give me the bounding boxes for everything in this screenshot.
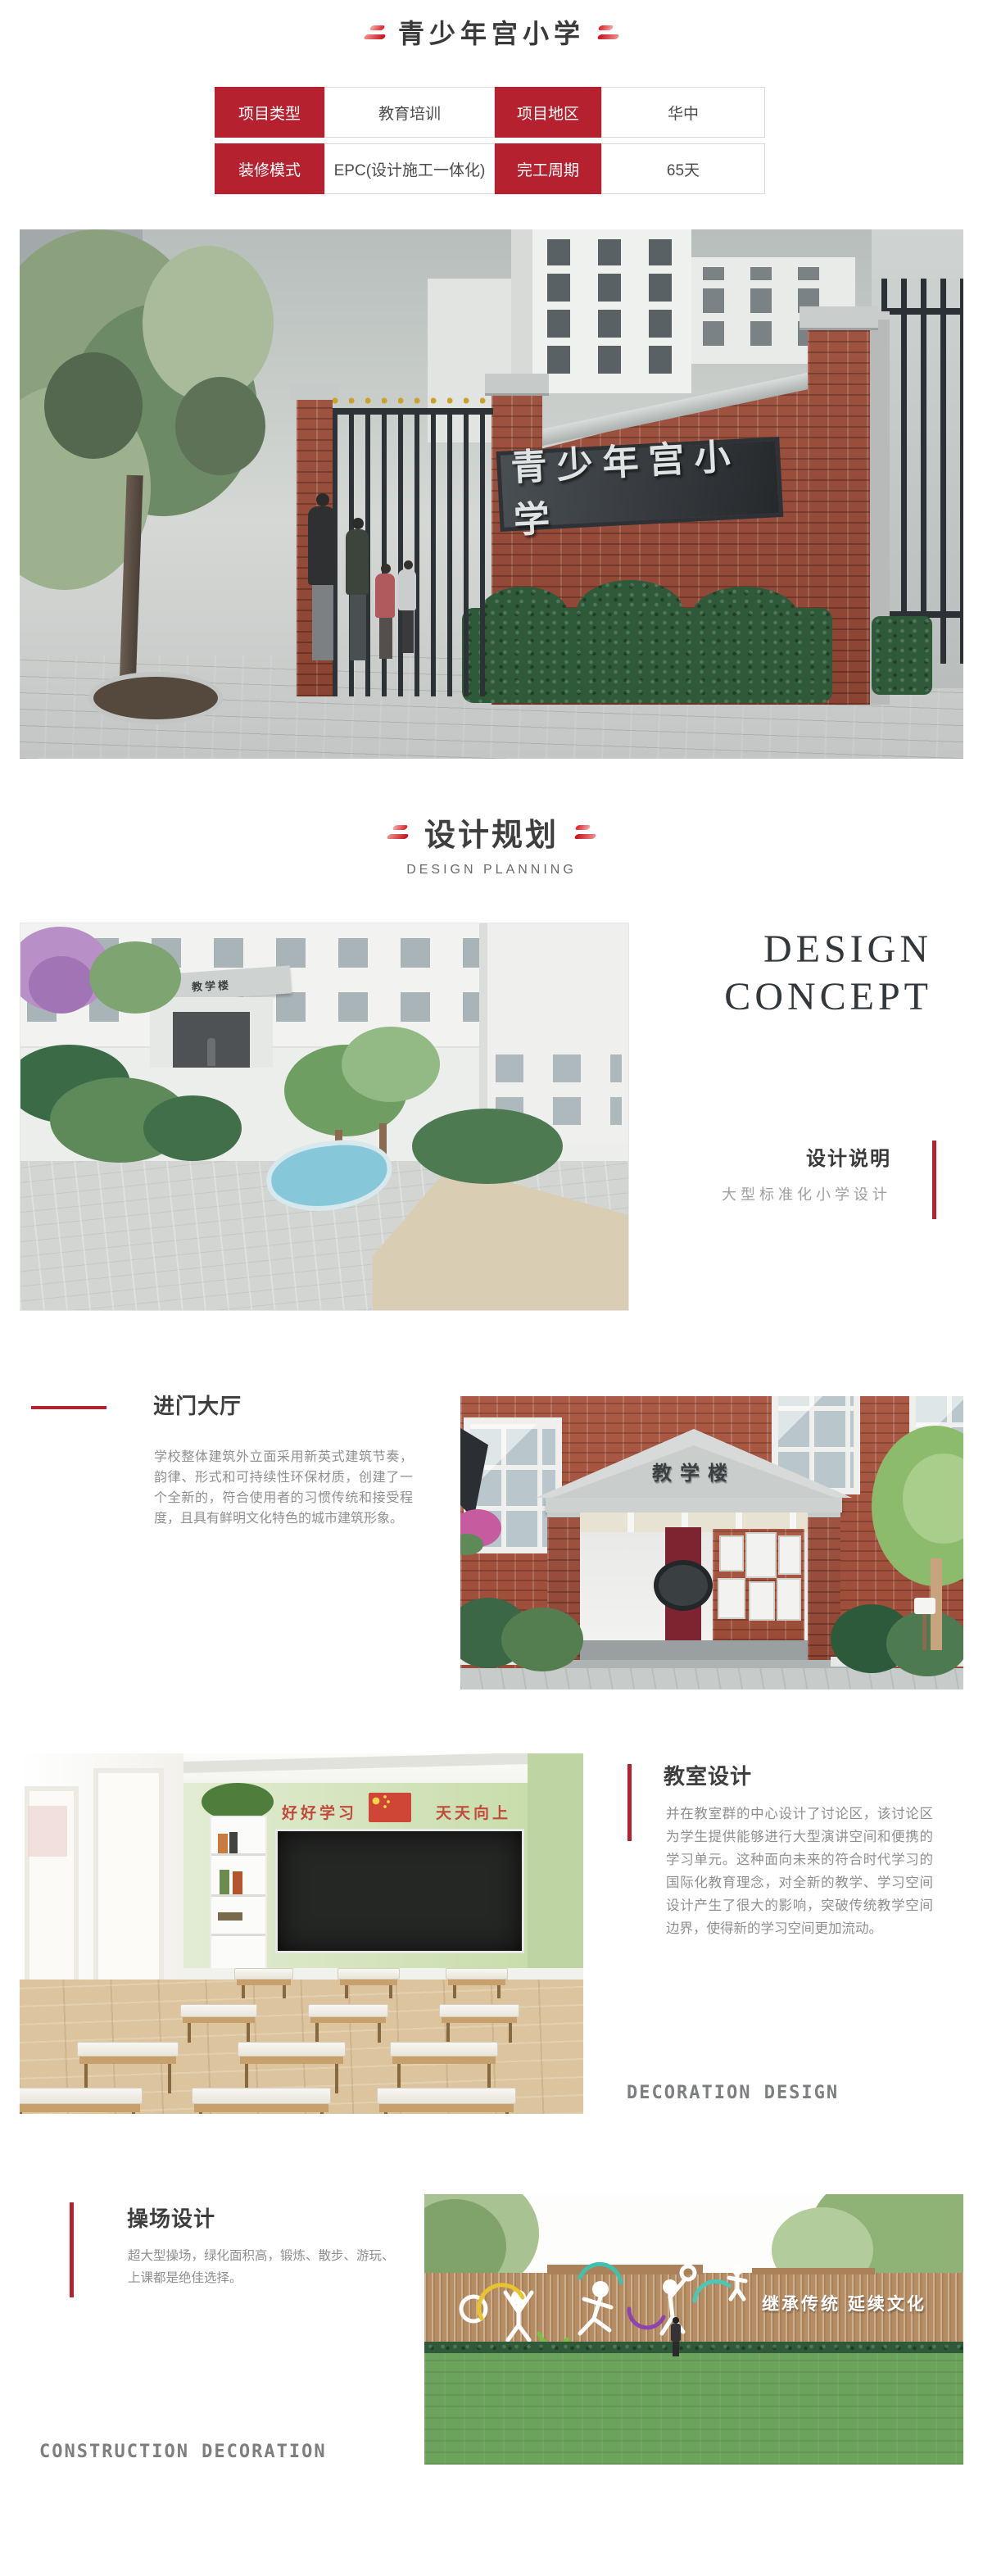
books (218, 1834, 228, 1853)
table-value-cell: 教育培训 (324, 87, 495, 138)
bush (412, 1109, 563, 1184)
bush (143, 1095, 242, 1161)
entablature (546, 1498, 842, 1512)
desk (308, 2004, 388, 2043)
blackboard (275, 1829, 524, 1953)
person-silhouette (207, 1038, 215, 1066)
table-value-cell: EPC(设计施工一体化) (324, 143, 495, 194)
red-dash-icon (365, 25, 385, 39)
desk (439, 2004, 519, 2043)
table-row: 项目类型 教育培训 项目地区 华中 (215, 87, 765, 138)
section-header-design-planning: 设计规划 DESIGN PLANNING (0, 810, 983, 878)
classroom-render: 好好学习 天天向上 (20, 1753, 583, 2114)
hedge (462, 608, 832, 703)
project-info-table: 项目类型 教育培训 项目地区 华中 装修模式 EPC(设计施工一体化) 完工周期… (215, 87, 765, 200)
red-dash-icon (575, 825, 596, 839)
playground-render: 继承传统 延续文化 (424, 2194, 963, 2465)
red-dash-icon (387, 825, 408, 839)
ceiling-beam (159, 1753, 583, 1774)
tree-canopy-dark (44, 352, 143, 459)
desk (234, 1968, 293, 1998)
lawn (424, 2353, 963, 2465)
person-silhouette (308, 493, 337, 660)
desk (446, 1968, 508, 1998)
page-title: 青少年宫小学 (398, 13, 585, 51)
hall-sign-text: 教学楼 (536, 1457, 852, 1485)
fence-rail (881, 308, 963, 315)
classroom-banner-right: 天天向上 (436, 1801, 511, 1823)
gate-top-rail (333, 408, 493, 415)
window-grid (547, 239, 680, 382)
table-header-cell: 项目类型 (215, 87, 324, 138)
red-horizontal-line (31, 1406, 106, 1409)
child-silhouette (398, 560, 418, 653)
page-header: 青少年宫小学 (0, 13, 983, 51)
tree-canopy (89, 941, 181, 1014)
decoration-design-label: DECORATION DESIGN (627, 2083, 839, 2103)
hall-title: 进门大厅 (153, 1390, 242, 1420)
tree-planter (88, 672, 223, 724)
hall-interior (580, 1512, 808, 1665)
mailbox-post (922, 1614, 926, 1650)
pillar-cap (800, 306, 878, 330)
school-sign-text: 青少年宫小学 (500, 424, 780, 543)
table-value-cell: 65天 (601, 143, 765, 194)
table-row: 装修模式 EPC(设计施工一体化) 完工周期 65天 (215, 143, 765, 194)
courtyard-render: 教学楼 (20, 923, 629, 1311)
design-note-title: 设计说明 (806, 1142, 891, 1171)
section-title: 设计规划 (424, 810, 559, 855)
flowering-tree-dark (29, 956, 94, 1014)
gate-finials (333, 393, 493, 406)
desk (337, 1968, 400, 1998)
culture-wall-text: 继承传统 延续文化 (762, 2291, 926, 2315)
desk (20, 2088, 143, 2114)
concept-heading-line: DESIGN (724, 926, 932, 973)
classroom-body: 并在教室群的中心设计了讨论区，该讨论区为学生提供能够进行大型演讲空间和便携的学习… (666, 1803, 933, 1940)
window-row (496, 1054, 622, 1082)
playground-title: 操场设计 (127, 2202, 215, 2233)
bush (501, 1608, 583, 1671)
classroom-banner-left: 好好学习 (282, 1801, 357, 1823)
design-note-text: 大型标准化小学设计 (722, 1183, 891, 1204)
desk (192, 2088, 331, 2114)
desk (180, 2004, 257, 2043)
photo-wall (713, 1529, 804, 1650)
hall-body: 学校整体建筑外立面采用新英式建筑节奏，韵律、形式和可持续性环保材质，创建了一个全… (154, 1447, 413, 1529)
books (229, 1832, 238, 1853)
red-vertical-bar (627, 1764, 632, 1841)
pillar-cap (485, 374, 549, 396)
concept-heading: DESIGN CONCEPT (724, 926, 932, 1021)
gate-pillar-cap (290, 383, 339, 400)
table-header-cell: 装修模式 (215, 143, 324, 194)
child-silhouette (375, 564, 396, 659)
round-window (654, 1560, 713, 1611)
table-value-cell: 华中 (601, 87, 765, 138)
hall-render: 教学楼 (460, 1396, 963, 1689)
classroom-title: 教室设计 (664, 1760, 752, 1790)
mailbox (914, 1598, 935, 1614)
red-vertical-bar (932, 1141, 936, 1219)
banner-faint (28, 1806, 67, 1857)
side-wall (528, 1753, 583, 1999)
hedge-right (872, 616, 932, 695)
person-silhouette (670, 2317, 682, 2356)
red-vertical-bar (70, 2202, 74, 2297)
books (220, 1870, 229, 1894)
desk (77, 2042, 179, 2093)
construction-decoration-label: CONSTRUCTION DECORATION (39, 2442, 327, 2462)
books (233, 1871, 242, 1894)
red-dash-icon (598, 25, 618, 39)
front-paving (460, 1668, 963, 1689)
desk (238, 2042, 346, 2093)
person-silhouette (346, 518, 370, 660)
tree-canopy (342, 1027, 440, 1102)
table-header-cell: 完工周期 (495, 143, 601, 194)
china-flag (369, 1793, 411, 1822)
section-subtitle: DESIGN PLANNING (0, 863, 983, 878)
table-header-cell: 项目地区 (495, 87, 601, 138)
hero-entrance-render: 青少年宫小学 (20, 229, 963, 759)
white-building-tall (511, 229, 691, 393)
books (218, 1912, 242, 1921)
tree-canopy-dark (175, 377, 265, 475)
school-sign-panel: 青少年宫小学 (496, 437, 784, 532)
metal-fence (881, 279, 963, 664)
desk (390, 2042, 498, 2093)
concept-heading-line: CONCEPT (724, 973, 932, 1021)
desk (377, 2088, 516, 2114)
bookshelf (210, 1816, 267, 1970)
playground-body: 超大型操场，绿化面积高，锻炼、散步、游玩、上课都是绝佳选择。 (128, 2245, 401, 2289)
